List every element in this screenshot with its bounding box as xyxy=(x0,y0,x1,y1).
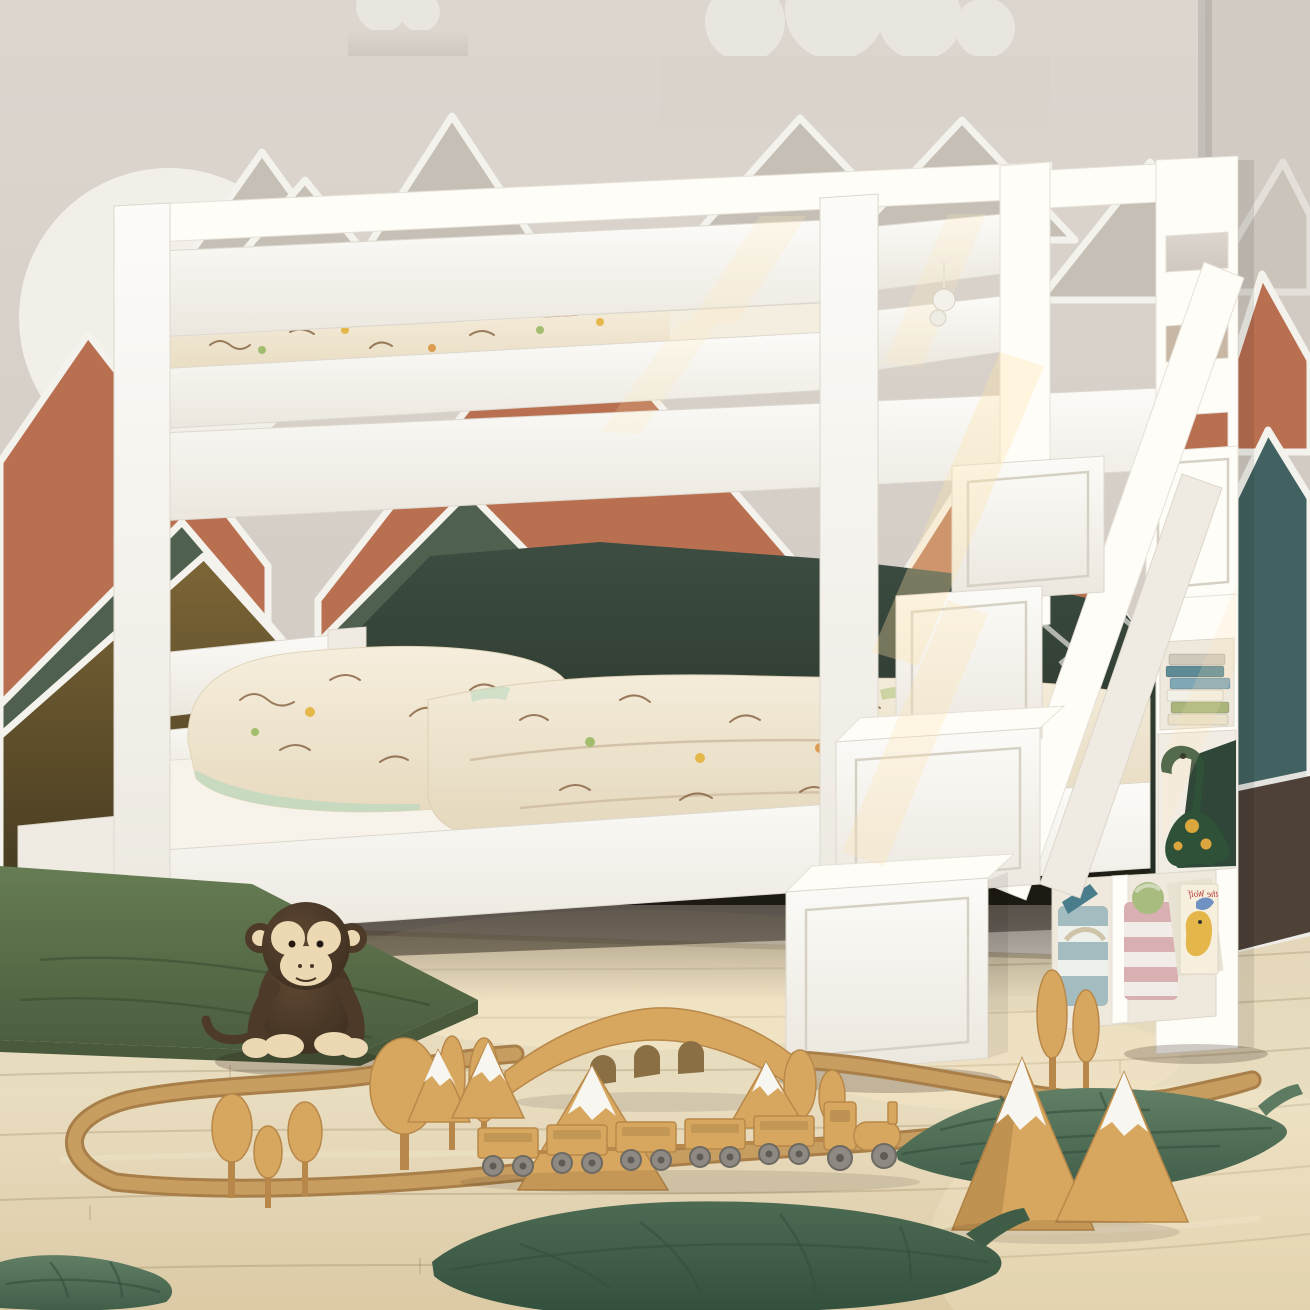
kids-bedroom-photo: the Wolf xyxy=(0,0,1310,1310)
book-title: the Wolf xyxy=(1187,889,1218,899)
stair-step-chest-2 xyxy=(786,854,1014,1074)
top-beam-extension xyxy=(1048,164,1158,208)
monkey-foot xyxy=(314,1032,354,1056)
monkey-foot xyxy=(264,1034,304,1058)
basket-pink xyxy=(1124,902,1178,1000)
